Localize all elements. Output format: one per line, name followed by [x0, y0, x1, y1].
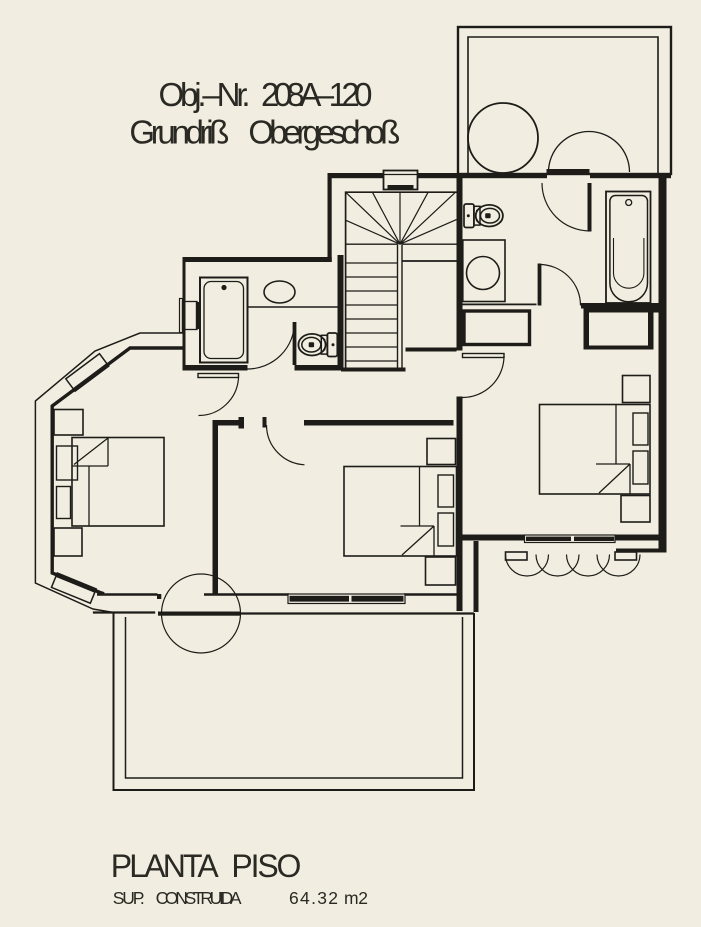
svg-text:SUP.: SUP. — [113, 888, 145, 908]
svg-text:Obergeschoß: Obergeschoß — [248, 114, 400, 151]
svg-text:208A–120: 208A–120 — [261, 76, 373, 113]
svg-text:Grundriß: Grundriß — [129, 114, 229, 151]
svg-text:PISO: PISO — [231, 848, 301, 884]
svg-text:CONSTRUIDA: CONSTRUIDA — [156, 888, 242, 908]
svg-text:Obj.–Nr.: Obj.–Nr. — [159, 76, 251, 113]
svg-text:PLANTA: PLANTA — [111, 848, 220, 884]
svg-text:m2: m2 — [344, 888, 368, 908]
svg-text:64.32: 64.32 — [289, 888, 338, 908]
